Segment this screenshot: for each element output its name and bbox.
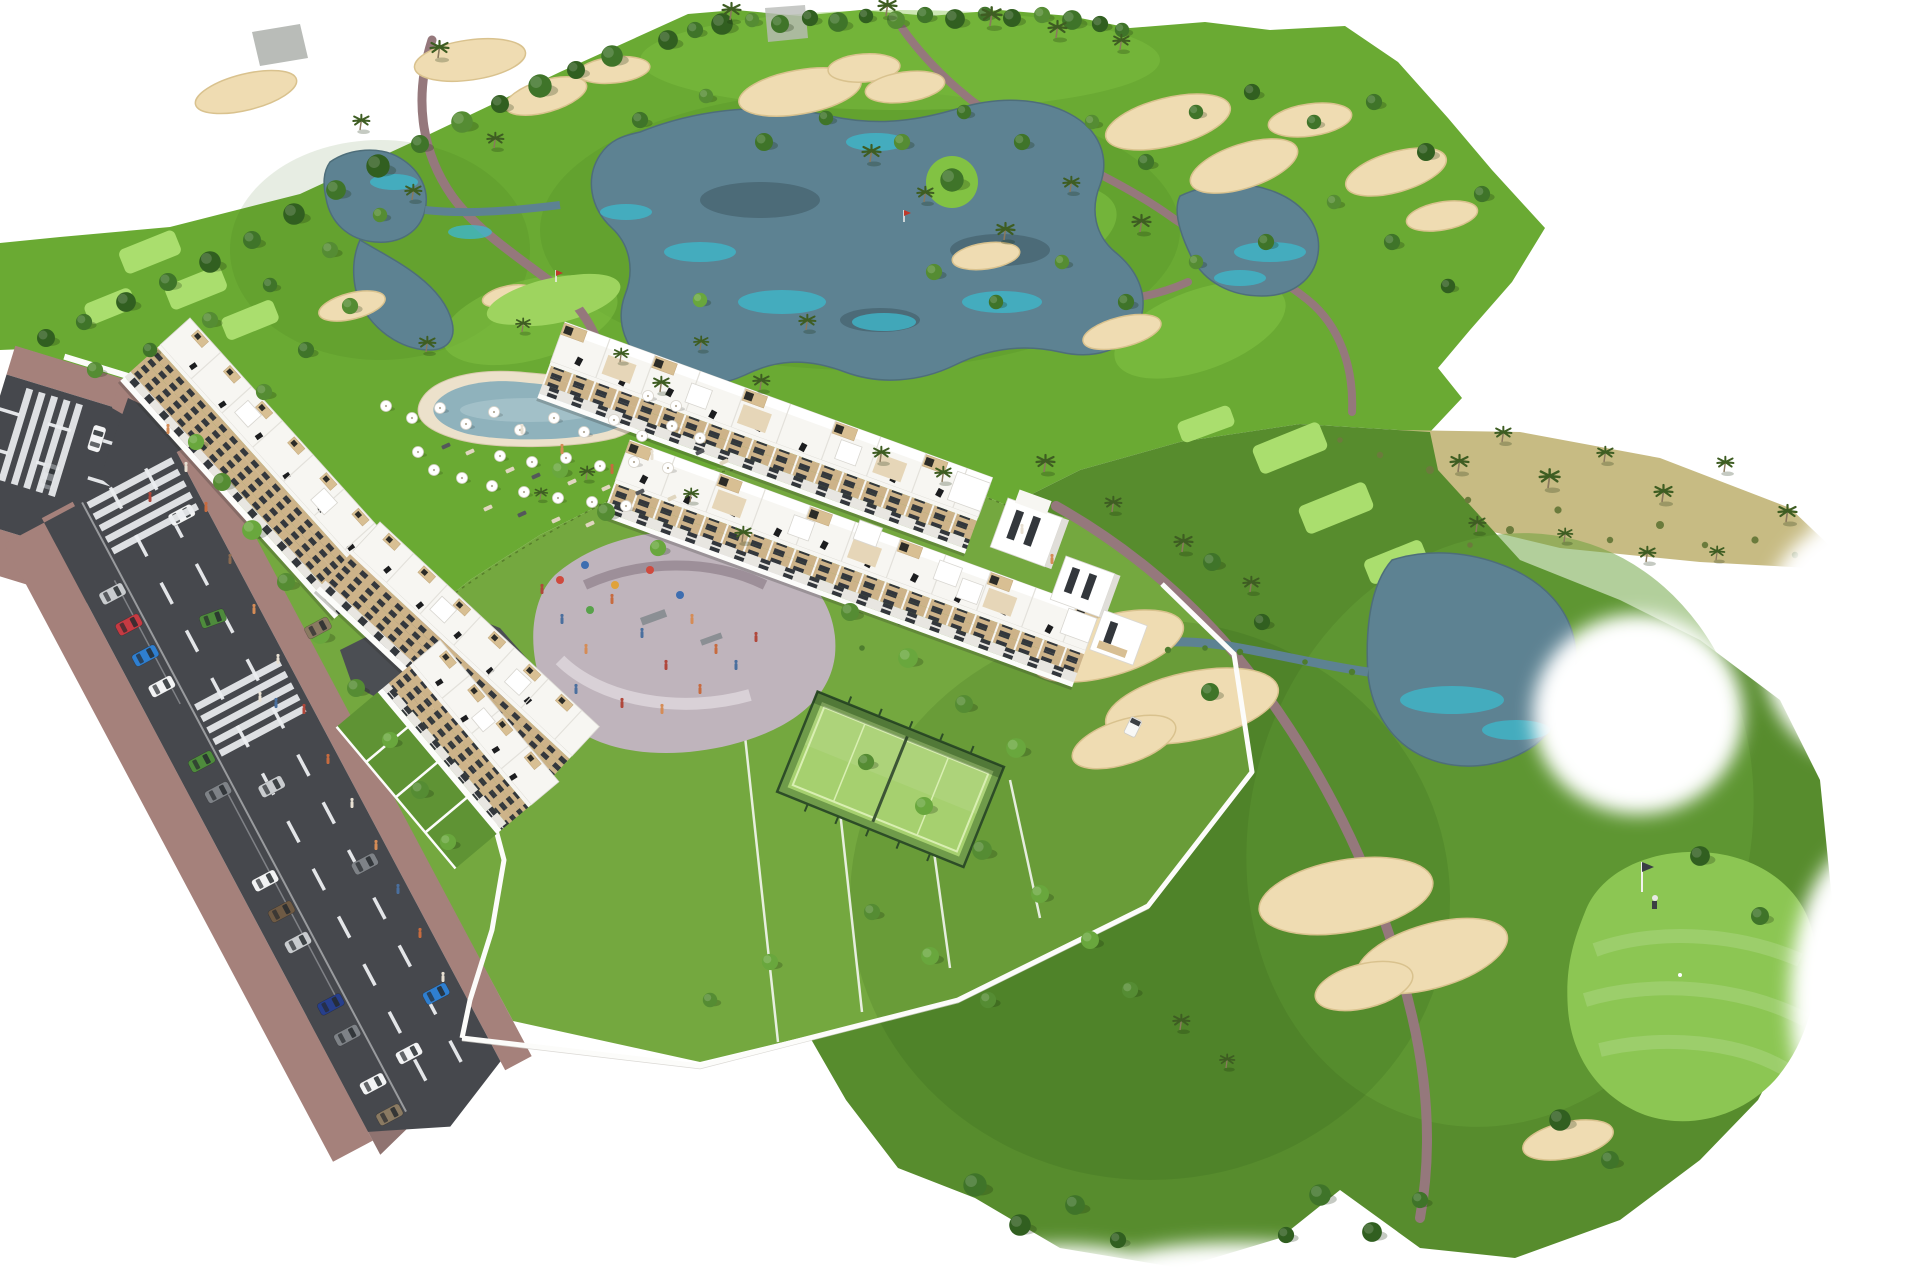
tree-highlight [1005,11,1014,20]
person-body [641,631,644,638]
person-head [650,450,653,453]
tree-highlight [1308,116,1315,123]
umbrella-pole [523,491,525,493]
golfer [1652,895,1658,901]
person-body [205,505,208,512]
person-body [149,495,152,502]
water-highlight [738,290,826,314]
person [441,972,444,982]
person-body [621,701,624,708]
tree-highlight [328,182,338,192]
play-equipment [556,576,564,584]
aerial-render [0,0,1920,1280]
tree-highlight [1551,1111,1562,1122]
person [1020,524,1023,534]
scrub-bush [1702,542,1708,548]
tree-highlight [77,315,85,323]
person-body [375,843,378,850]
scrub-bush [1349,669,1355,675]
person-body [521,427,524,434]
tree-highlight [39,331,48,340]
person-body [651,453,654,460]
tree-highlight [144,344,151,351]
person [610,464,613,474]
umbrella-pole [531,461,533,463]
tree-highlight [1119,295,1127,303]
tree-highlight [900,650,910,660]
person-head [574,684,577,687]
person-body [541,587,544,594]
play-equipment [586,606,594,614]
umbrella-pole [411,417,413,419]
scrub-bush [1506,526,1514,534]
palm-shadow [1601,462,1614,467]
person-body [397,887,400,894]
palm-shadow [1041,472,1055,477]
palm-shadow [877,462,890,467]
person-body [167,427,170,434]
tree-highlight [694,294,701,301]
tree-highlight [413,783,422,792]
umbrella-pole [641,435,643,437]
umbrella-pole [565,457,567,459]
person-body [185,465,188,472]
tree-highlight [843,605,852,614]
palm-shadow [1455,472,1469,477]
umbrella-pole [591,501,593,503]
tree-highlight [865,905,873,913]
palm-shadow [867,162,881,167]
tree-highlight [947,11,957,21]
fade-bay [1533,614,1743,814]
palm-shadow [1659,502,1673,507]
person-head [610,464,613,467]
tree-highlight [1056,256,1063,263]
tree-highlight [1205,555,1214,564]
person-head [560,444,563,447]
tree-highlight [257,385,265,393]
person-head [560,614,563,617]
person-head [640,628,643,631]
play-equipment [646,566,654,574]
tree-highlight [1067,1197,1077,1207]
person [258,692,261,702]
tree-highlight [603,47,614,58]
tree-highlight [942,170,954,182]
tree-highlight [383,733,391,741]
person-head [274,698,277,701]
tree-highlight [285,205,296,216]
person [184,462,187,472]
tree-highlight [917,799,926,808]
tree-highlight [895,135,903,143]
palm-shadow [803,330,816,335]
tree-highlight [803,11,811,19]
palm-shadow [727,20,741,25]
umbrella-pole [613,419,615,421]
palm-shadow [1643,562,1656,567]
person [252,604,255,614]
person-body [611,467,614,474]
tree-highlight [1123,983,1131,991]
tree-highlight [245,233,254,242]
palm-shadow [739,542,752,547]
palm-shadow [538,500,548,504]
scrub-bush [1467,542,1473,548]
person [374,840,377,850]
water-highlight [664,242,736,262]
play-equipment [581,561,589,569]
golf-hole [1678,973,1682,977]
umbrella-pole [647,395,649,397]
tree-highlight [118,294,128,304]
person [690,614,693,624]
umbrella-pole [385,405,387,407]
person [698,684,701,694]
person-head [734,660,737,663]
person-head [374,840,377,843]
person [228,554,231,564]
person [560,614,563,624]
person [620,698,623,708]
palm-shadow [1109,512,1122,517]
play-equipment [676,591,684,599]
tree-highlight [1692,848,1702,858]
palm-shadow [1117,50,1130,55]
person-head [396,884,399,887]
scrub-bush [1165,647,1171,653]
tree-highlight [201,253,212,264]
tree-highlight [965,1175,977,1187]
person [560,444,563,454]
person [520,424,523,434]
person-head [584,644,587,647]
tree-highlight [323,243,331,251]
palm-shadow [435,58,449,63]
umbrella-pole [625,505,627,507]
umbrella-pole [599,465,601,467]
palm-shadow [987,25,1002,31]
tree-highlight [923,949,932,958]
person-body [665,663,668,670]
person-head [326,754,329,757]
palm-shadow [1499,442,1512,447]
palm-shadow [1179,552,1193,557]
palm-shadow [1247,592,1260,597]
scrub-bush [859,645,865,651]
person [660,704,663,714]
tree-highlight [981,993,989,1001]
tree-highlight [1475,187,1483,195]
tree-highlight [1753,909,1762,918]
tree-highlight [203,313,211,321]
person [664,660,667,670]
scrub-bush [1465,497,1471,503]
tree-highlight [1367,95,1375,103]
tree-highlight [1190,106,1197,113]
tree-highlight [859,755,867,763]
tree-highlight [264,279,271,286]
tree-highlight [958,106,965,113]
person-head [664,660,667,663]
person-body [715,647,718,654]
person-body [611,597,614,604]
tree-highlight [453,113,464,124]
tree-highlight [1442,280,1449,287]
tree-highlight [773,17,782,26]
scrub-bush [1237,649,1243,655]
tree-highlight [244,522,254,532]
tree-highlight [569,63,578,72]
tree-highlight [860,10,867,17]
palm-shadow [883,16,897,21]
tree-highlight [830,14,840,24]
person-body [661,707,664,714]
umbrella-pole [433,469,435,471]
tree-highlight [688,23,696,31]
tree-highlight [349,681,358,690]
tree-highlight [1064,12,1074,22]
person-body [442,975,445,982]
person [148,492,151,502]
scrub-bush [1554,506,1561,513]
tree-highlight [1093,17,1101,25]
tree-highlight [553,463,561,471]
tree-highlight [343,299,351,307]
person-body [561,617,564,624]
person [1050,554,1053,564]
palm-shadow [409,200,422,205]
palm-shadow [520,332,531,336]
tree-highlight [660,32,670,42]
tree-highlight [279,575,288,584]
tree-highlight [1111,1233,1119,1241]
person [204,502,207,512]
person-body [253,607,256,614]
tree-highlight [1419,145,1428,154]
person-head [540,584,543,587]
tree-highlight [374,209,381,216]
person-head [302,704,305,707]
tree-highlight [1279,1228,1287,1236]
palm-shadow [921,202,934,207]
umbrella-pole [699,437,701,439]
palm-shadow [584,480,595,484]
umbrella-pole [553,417,555,419]
person-body [561,447,564,454]
person [650,450,653,460]
tree-highlight [927,265,935,273]
tree-highlight [368,156,380,168]
umbrella-pole [671,425,673,427]
person-body [699,687,702,694]
person-head [252,604,255,607]
umbrella-pole [493,411,495,413]
umbrella-pole [633,461,635,463]
scrub-bush [1607,537,1613,543]
water-highlight [448,225,492,239]
tree-highlight [1259,235,1267,243]
person-head [660,704,663,707]
person-body [303,707,306,714]
person-head [620,698,623,701]
tree-highlight [1033,887,1042,896]
person-head [714,644,717,647]
person-body [351,801,354,808]
water-reflection [700,182,820,218]
palm-shadow [357,130,370,135]
umbrella-pole [557,497,559,499]
person [350,798,353,808]
person-head [1050,554,1053,557]
tree-highlight [757,135,766,144]
palm-shadow [423,352,436,357]
person-head [610,594,613,597]
person-head [754,632,757,635]
tree-highlight [493,97,502,106]
person-body [585,647,588,654]
tree-highlight [1035,8,1043,16]
palm-shadow [1721,472,1734,477]
tree-highlight [713,15,724,26]
palm-shadow [939,482,952,487]
tree-highlight [161,275,170,284]
palm-shadow [1473,532,1486,537]
tree-highlight [1011,1216,1022,1227]
person-body [1051,557,1054,564]
person-body [1021,527,1024,534]
person [610,594,613,604]
person [396,884,399,894]
person [302,704,305,714]
tree-highlight [1413,1193,1421,1201]
umbrella-pole [583,431,585,433]
tree-highlight [1116,24,1123,31]
palm-shadow [688,502,699,506]
person [754,632,757,642]
tree-highlight [1139,155,1147,163]
scrub-bush [1751,536,1758,543]
person-head [520,424,523,427]
tree-highlight [189,435,197,443]
umbrella-pole [675,405,677,407]
person-head [276,654,279,657]
palm-shadow [618,362,629,366]
palm-shadow [1545,487,1560,493]
person [734,660,737,670]
tree-highlight [918,8,926,16]
tree-highlight [957,697,966,706]
person-body [755,635,758,642]
person [276,654,279,664]
person-body [735,663,738,670]
person-body [419,931,422,938]
tree-highlight [1311,1186,1322,1197]
palm-shadow [1177,1030,1190,1035]
tree-highlight [1328,196,1335,203]
tree-highlight [1364,1224,1374,1234]
tree-highlight [1245,85,1253,93]
scrub-bush [1377,452,1383,458]
person-head [166,424,169,427]
person-head [690,614,693,617]
tree-highlight [413,137,422,146]
person-head [204,502,207,505]
tree-highlight [1385,235,1393,243]
person-body [575,687,578,694]
palm-shadow [1783,522,1797,527]
umbrella-pole [499,455,501,457]
person-head [184,462,187,465]
tree-highlight [651,541,659,549]
person [574,684,577,694]
tree-highlight [700,90,707,97]
umbrella-pole [417,451,419,453]
palm-shadow [1562,542,1573,546]
tree-highlight [704,994,711,1001]
umbrella-pole [465,423,467,425]
palm-shadow [1067,192,1080,197]
scrub-bush [1656,521,1664,529]
person-head [258,692,261,695]
person-head [228,554,231,557]
palm-shadow [1714,560,1725,564]
tree-highlight [763,955,771,963]
umbrella-pole [439,407,441,409]
water-highlight [1400,686,1504,714]
water-highlight [1214,270,1266,286]
tree-highlight [1015,135,1023,143]
person-body [229,557,232,564]
person-head [418,928,421,931]
person-head [350,798,353,801]
golfer [1652,901,1657,909]
person-head [1020,524,1023,527]
person-body [327,757,330,764]
tree-highlight [1203,685,1212,694]
umbrella-pole [667,467,669,469]
tree-highlight [530,76,542,88]
umbrella-pole [491,485,493,487]
person [326,754,329,764]
tree-highlight [441,835,449,843]
person [418,928,421,938]
play-equipment [611,581,619,589]
person-head [698,684,701,687]
tree-highlight [990,296,997,303]
scrub-bush [1337,437,1343,443]
water-highlight [852,313,916,331]
tree-highlight [215,475,224,484]
palm-shadow [1137,232,1151,237]
water-highlight [600,204,652,220]
person [166,424,169,434]
tree-highlight [820,112,827,119]
render-canvas [0,0,1920,1280]
person [640,628,643,638]
tree-highlight [299,343,307,351]
palm-shadow [1053,38,1067,43]
tree-highlight [1190,256,1197,263]
scrub-bush [1202,645,1208,651]
tree-highlight [1255,615,1263,623]
person [274,698,277,708]
palm-shadow [698,350,709,354]
tree-highlight [633,113,641,121]
scrub-bush [1302,659,1308,665]
person-body [275,701,278,708]
palm-shadow [1224,1068,1235,1072]
